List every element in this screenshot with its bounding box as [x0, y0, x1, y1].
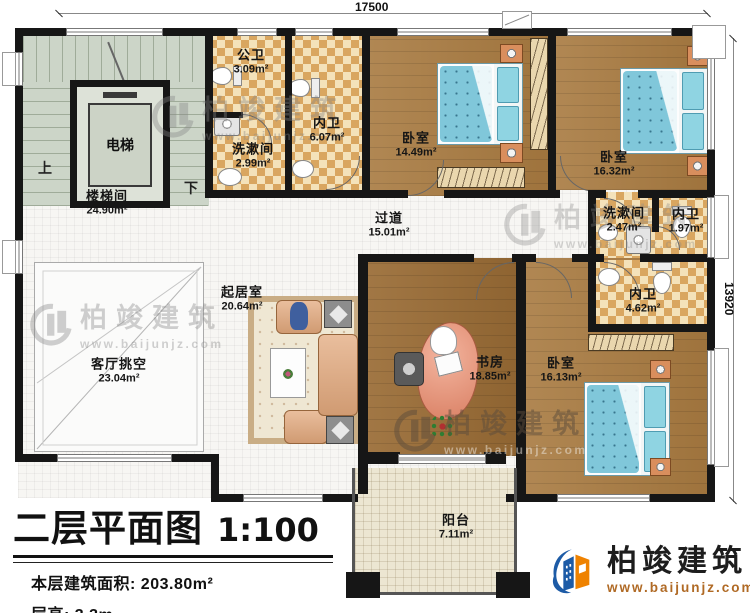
stair-treads-left — [23, 82, 72, 206]
sofa-symbol — [318, 334, 358, 416]
room-label-inner-bath-2: 内卫1.97m² — [669, 208, 704, 235]
window-symbol — [15, 240, 23, 274]
plan-scale: 1:100 — [217, 511, 319, 549]
balcony-wall — [352, 468, 355, 578]
room-label-washroom-1: 洗漱间2.99m² — [232, 143, 274, 170]
side-table-symbol — [324, 300, 352, 328]
room-label-washroom-2: 洗漱间2.47m² — [603, 207, 645, 234]
roof-flue — [502, 11, 532, 29]
window-sill — [2, 52, 16, 86]
title-underline — [13, 555, 333, 563]
wall-segment — [362, 33, 370, 195]
nightstand-symbol — [650, 458, 671, 476]
flower-decor — [283, 369, 293, 379]
bay-window — [692, 25, 726, 59]
bed-pillows — [494, 64, 522, 144]
room-label-study: 书房18.85m² — [470, 356, 511, 383]
company-logo: 柏竣建筑 www.baijunjz.com — [545, 545, 750, 597]
top-dimension-value: 17500 — [355, 0, 388, 14]
company-logo-icon — [545, 545, 599, 597]
room-label-inner-bath-3: 内卫4.62m² — [626, 288, 661, 315]
floor-plan-canvas: 17500 13920 电梯 上 下 — [0, 0, 750, 613]
title-block: 二层平面图 1:100 本层建筑面积: 203.80m² 层高: 3.3m — [13, 498, 333, 613]
nightstand-symbol — [687, 156, 708, 176]
sliding-door-symbol — [398, 454, 486, 464]
window-sill — [714, 348, 729, 467]
stair-down-label: 下 — [184, 178, 198, 198]
desk-lamp-symbol — [430, 326, 457, 355]
wall-segment — [358, 254, 474, 262]
balcony-wall — [514, 468, 517, 578]
bed-symbol — [620, 68, 708, 154]
wall-segment — [205, 190, 408, 198]
person-figure — [290, 302, 308, 330]
wall-segment — [285, 33, 292, 193]
sink-symbol — [292, 160, 314, 178]
wall-segment — [444, 190, 560, 198]
window-symbol — [397, 28, 489, 36]
bed-pillows — [679, 69, 707, 153]
wardrobe-symbol — [588, 334, 674, 351]
window-symbol — [295, 28, 333, 36]
nightstand-symbol — [650, 360, 671, 379]
window-symbol — [57, 454, 172, 462]
balcony-pillar — [346, 572, 380, 598]
elevator-door-icon — [103, 92, 137, 98]
bed-symbol — [437, 63, 523, 145]
floor-height-stat: 层高: 3.3m — [31, 601, 333, 613]
wall-segment — [516, 262, 526, 494]
plant-symbol — [430, 414, 455, 439]
room-label-bedroom-3: 卧室16.13m² — [541, 357, 582, 384]
room-label-balcony: 阳台7.11m² — [439, 514, 473, 541]
closet-symbol — [530, 38, 548, 150]
wardrobe-symbol — [437, 167, 525, 188]
stair-up-label: 上 — [38, 158, 52, 178]
room-label-living: 起居室20.64m² — [221, 286, 263, 313]
room-label-void: 客厅挑空23.04m² — [91, 358, 147, 385]
room-label-bedroom-1: 卧室14.49m² — [396, 132, 437, 159]
toilet-symbol — [288, 78, 320, 98]
window-sill — [2, 240, 16, 274]
floor-area-stat: 本层建筑面积: 203.80m² — [31, 570, 333, 594]
window-symbol — [557, 494, 650, 502]
wall-segment — [572, 254, 604, 262]
nightstand-symbol — [500, 44, 523, 63]
room-label-bedroom-2: 卧室16.32m² — [594, 151, 635, 178]
nightstand-symbol — [500, 143, 523, 163]
right-dimension-value: 13920 — [722, 282, 736, 315]
window-symbol — [567, 28, 672, 36]
window-symbol — [237, 28, 277, 36]
company-name: 柏竣建筑 — [607, 547, 750, 577]
page-title: 二层平面图 — [13, 498, 203, 552]
sink-symbol — [218, 168, 242, 186]
coffee-table-symbol — [270, 348, 306, 398]
room-label-public-bath: 公卫3.09m² — [234, 49, 269, 76]
mattress — [623, 71, 677, 151]
computer-monitor-symbol — [394, 352, 424, 386]
wall-segment — [484, 452, 506, 464]
side-table-symbol — [326, 416, 354, 444]
window-sill — [714, 195, 729, 259]
mattress — [587, 385, 639, 473]
room-label-corridor: 过道15.01m² — [369, 212, 410, 239]
wall-segment — [596, 190, 606, 198]
mattress — [440, 66, 492, 142]
window-symbol — [66, 28, 163, 36]
wall-segment — [205, 33, 213, 195]
wall-segment — [358, 254, 368, 494]
window-symbol — [707, 58, 715, 150]
room-label-stairwell: 楼梯间24.90m² — [86, 190, 128, 217]
wall-segment — [213, 112, 243, 118]
wall-segment — [640, 254, 715, 262]
elevator-label: 电梯 — [106, 135, 134, 155]
wall-segment — [548, 33, 556, 191]
wall-segment — [638, 190, 715, 198]
wall-segment — [588, 324, 715, 332]
elevator-cab: 电梯 — [88, 103, 152, 187]
room-label-inner-bath-1: 内卫6.07m² — [310, 117, 345, 144]
wall-segment — [512, 254, 536, 262]
right-dimension-line — [733, 38, 734, 502]
company-url: www.baijunjz.com — [607, 580, 750, 595]
window-symbol — [15, 52, 23, 86]
balcony-pillar — [496, 572, 530, 598]
